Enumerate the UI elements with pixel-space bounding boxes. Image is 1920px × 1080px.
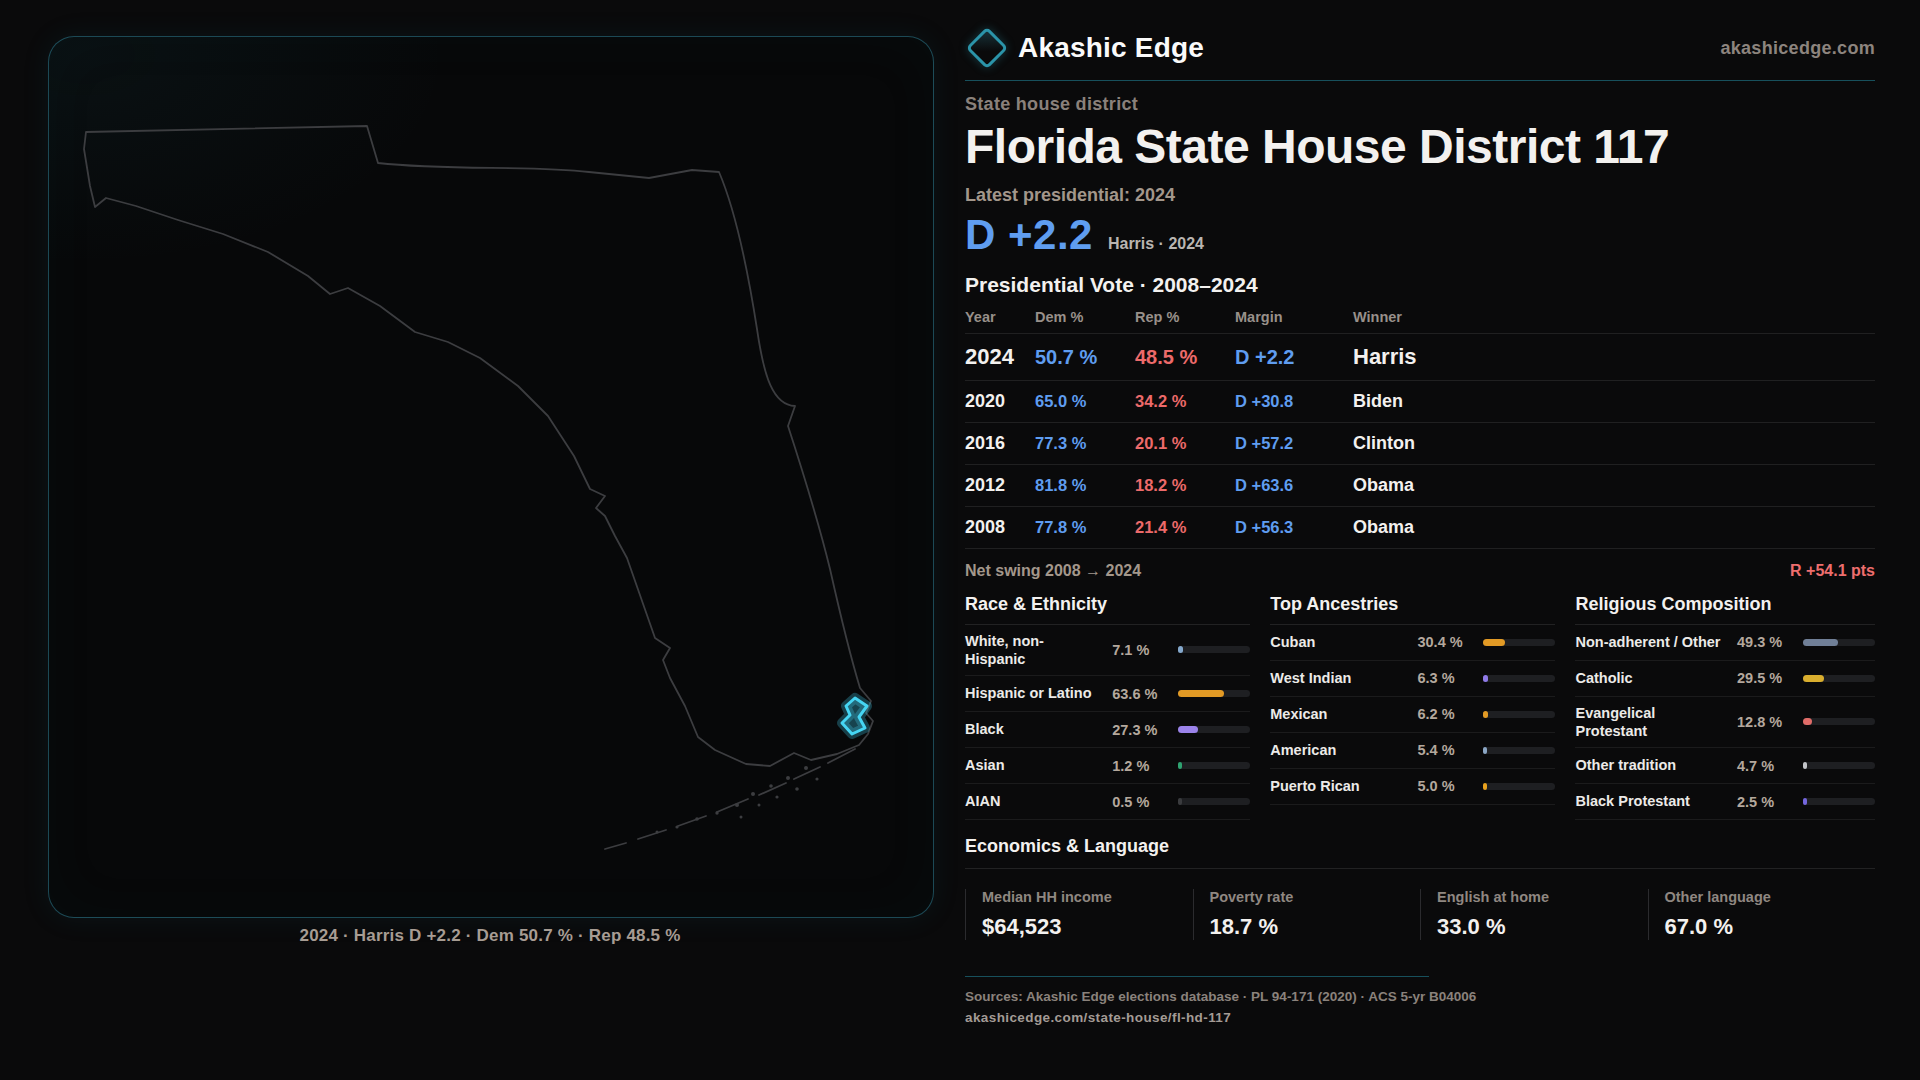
col-rep: Rep %: [1135, 309, 1235, 325]
stat-bar: [1178, 690, 1250, 697]
margin-context: Harris · 2024: [1108, 235, 1204, 253]
col-winner: Winner: [1353, 309, 1875, 325]
section-title: Top Ancestries: [1270, 594, 1555, 625]
stat-row: Black Protestant 2.5 %: [1575, 784, 1875, 820]
table-row: 2024 50.7 % 48.5 % D +2.2 Harris: [965, 334, 1875, 381]
stat-bar-fill: [1178, 690, 1224, 697]
table-row: 2012 81.8 % 18.2 % D +63.6 Obama: [965, 465, 1875, 507]
table-header-row: Year Dem % Rep % Margin Winner: [965, 307, 1875, 334]
latest-presidential-label: Latest presidential: 2024: [965, 185, 1875, 206]
stat-row: Other tradition 4.7 %: [1575, 748, 1875, 784]
ancestries-panel: Top Ancestries Cuban 30.4 % West Indian …: [1270, 594, 1555, 820]
net-swing-value: R +54.1 pts: [1790, 562, 1875, 580]
site-domain-link[interactable]: akashicedge.com: [1720, 38, 1875, 59]
section-title: Race & Ethnicity: [965, 594, 1250, 625]
stat-row: Puerto Rican 5.0 %: [1270, 769, 1555, 805]
stat-row: Evangelical Protestant 12.8 %: [1575, 697, 1875, 748]
brand-name: Akashic Edge: [1018, 32, 1204, 64]
stat-bar-fill: [1483, 639, 1505, 646]
section-title: Religious Composition: [1575, 594, 1875, 625]
page: 2024 · Harris D +2.2 · Dem 50.7 % · Rep …: [0, 0, 1920, 1080]
site-header: Akashic Edge akashicedge.com: [965, 24, 1875, 72]
stat-poverty-rate: Poverty rate 18.7 %: [1193, 889, 1421, 940]
headline-margin: D +2.2 Harris · 2024: [965, 211, 1875, 259]
economics-title: Economics & Language: [965, 836, 1875, 869]
stat-english-at-home: English at home 33.0 %: [1420, 889, 1648, 940]
florida-map: [49, 37, 933, 917]
stat-bar-fill: [1178, 646, 1183, 653]
district-map-panel: [48, 36, 934, 918]
stat-row: Hispanic or Latino 63.6 %: [965, 676, 1250, 712]
presidential-vote-table: Year Dem % Rep % Margin Winner 2024 50.7…: [965, 307, 1875, 549]
stat-row: Asian 1.2 %: [965, 748, 1250, 784]
page-footer: Sources: Akashic Edge elections database…: [965, 976, 1875, 1025]
map-caption: 2024 · Harris D +2.2 · Dem 50.7 % · Rep …: [48, 926, 932, 946]
col-year: Year: [965, 309, 1035, 325]
table-row: 2008 77.8 % 21.4 % D +56.3 Obama: [965, 507, 1875, 549]
stat-bar-fill: [1803, 639, 1838, 646]
brand-diamond-icon: [966, 27, 1008, 69]
economics-section: Economics & Language Median HH income $6…: [965, 836, 1875, 940]
sources-line: Sources: Akashic Edge elections database…: [965, 989, 1875, 1004]
stat-bar-fill: [1178, 798, 1182, 805]
table-row: 2020 65.0 % 34.2 % D +30.8 Biden: [965, 381, 1875, 423]
stat-bar: [1803, 798, 1875, 805]
stat-row: Black 27.3 %: [965, 712, 1250, 748]
stat-bar: [1483, 711, 1555, 718]
footer-divider: [965, 976, 1429, 977]
net-swing: Net swing 2008 → 2024 R +54.1 pts: [965, 562, 1875, 580]
stat-bar: [1803, 718, 1875, 725]
stat-bar: [1803, 762, 1875, 769]
stat-bar: [1178, 762, 1250, 769]
stat-bar-fill: [1483, 711, 1487, 718]
stat-bar: [1803, 675, 1875, 682]
stat-bar: [1483, 783, 1555, 790]
stat-bar: [1178, 646, 1250, 653]
stat-row: AIAN 0.5 %: [965, 784, 1250, 820]
header-divider: [965, 80, 1875, 81]
stat-row: West Indian 6.3 %: [1270, 661, 1555, 697]
stat-row: Non-adherent / Other 49.3 %: [1575, 625, 1875, 661]
stat-row: White, non-Hispanic 7.1 %: [965, 625, 1250, 676]
stat-row: Mexican 6.2 %: [1270, 697, 1555, 733]
col-margin: Margin: [1235, 309, 1353, 325]
kicker: State house district: [965, 94, 1875, 115]
stat-median-income: Median HH income $64,523: [965, 889, 1193, 940]
economics-stats: Median HH income $64,523 Poverty rate 18…: [965, 889, 1875, 940]
margin-value: D +2.2: [965, 211, 1093, 259]
stat-row: American 5.4 %: [1270, 733, 1555, 769]
stat-bar-fill: [1178, 762, 1182, 769]
stat-bar: [1178, 726, 1250, 733]
stat-bar: [1483, 639, 1555, 646]
florida-keys-outline: [605, 749, 855, 849]
district-report: Akashic Edge akashicedge.com State house…: [965, 24, 1875, 1025]
stat-bar-fill: [1483, 675, 1488, 682]
stat-bar-fill: [1803, 718, 1812, 725]
race-ethnicity-panel: Race & Ethnicity White, non-Hispanic 7.1…: [965, 594, 1250, 820]
demographics: Race & Ethnicity White, non-Hispanic 7.1…: [965, 594, 1875, 820]
stat-row: Cuban 30.4 %: [1270, 625, 1555, 661]
religion-panel: Religious Composition Non-adherent / Oth…: [1575, 594, 1875, 820]
stat-bar-fill: [1803, 762, 1807, 769]
stat-bar: [1483, 675, 1555, 682]
stat-bar-fill: [1803, 798, 1807, 805]
stat-other-language: Other language 67.0 %: [1648, 889, 1876, 940]
vote-table-title: Presidential Vote · 2008–2024: [965, 273, 1875, 297]
stat-bar: [1483, 747, 1555, 754]
page-title: Florida State House District 117: [965, 120, 1875, 174]
stat-row: Catholic 29.5 %: [1575, 661, 1875, 697]
net-swing-label: Net swing 2008 → 2024: [965, 562, 1141, 580]
florida-bay-islands: [656, 766, 819, 834]
stat-bar-fill: [1803, 675, 1824, 682]
stat-bar-fill: [1483, 747, 1487, 754]
permalink[interactable]: akashicedge.com/state-house/fl-hd-117: [965, 1010, 1875, 1025]
stat-bar: [1803, 639, 1875, 646]
stat-bar-fill: [1483, 783, 1487, 790]
table-row: 2016 77.3 % 20.1 % D +57.2 Clinton: [965, 423, 1875, 465]
stat-bar: [1178, 798, 1250, 805]
col-dem: Dem %: [1035, 309, 1135, 325]
stat-bar-fill: [1178, 726, 1198, 733]
florida-outline: [84, 126, 873, 766]
